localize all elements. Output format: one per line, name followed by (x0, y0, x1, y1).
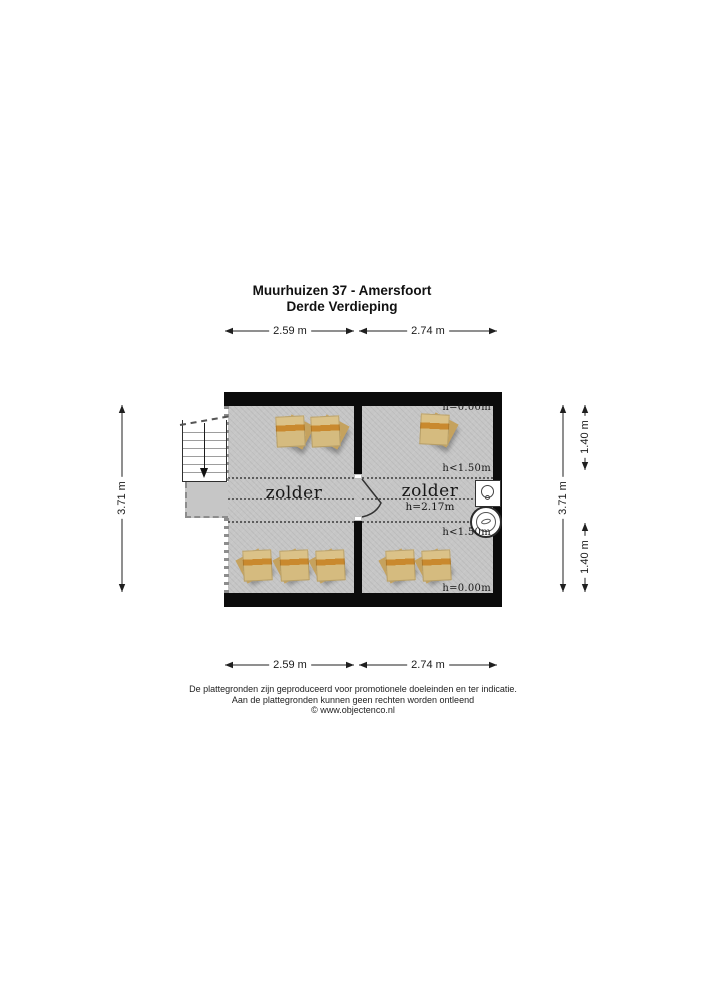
dim-bottom-left: 2.59 m (269, 659, 311, 671)
door-swing-icon (354, 474, 394, 524)
dim-left-side: 3.71 m (116, 477, 128, 519)
height-marker-lower: h<1.50m (442, 527, 491, 538)
room-label-left-zolder: zolder (266, 483, 323, 503)
dim-bottom-right: 2.74 m (407, 659, 449, 671)
ceiling-height-label: h=2.17m (406, 501, 455, 513)
height-marker-bottom: h=0.00m (442, 583, 491, 594)
disclaimer-line-3: © www.objectenco.nl (103, 705, 603, 716)
sloped-edge-lower (224, 518, 229, 593)
height-marker-upper: h<1.50m (442, 463, 491, 474)
dim-top-right: 2.74 m (407, 325, 449, 337)
dim-top-left: 2.59 m (269, 325, 311, 337)
title-address: Muurhuizen 37 - Amersfoort (192, 283, 492, 299)
stair-landing (185, 482, 228, 518)
skylight-icon (422, 550, 454, 582)
stairs-down-arrow-icon (200, 468, 208, 478)
title-floor: Derde Verdieping (192, 299, 492, 315)
headroom-line (228, 477, 354, 479)
toilet-fixture-icon (475, 480, 501, 507)
skylight-icon (276, 416, 308, 448)
disclaimer: De plattegronden zijn geproduceerd voor … (103, 684, 603, 716)
stair-direction-line (204, 423, 205, 469)
skylight-icon (420, 414, 452, 446)
wall-bottom (224, 593, 502, 607)
floorplan-page: Muurhuizen 37 - Amersfoort Derde Verdiep… (0, 0, 707, 1000)
wall-divider-upper (354, 406, 362, 474)
skylight-icon (311, 416, 343, 448)
skylight-icon (316, 550, 348, 582)
height-marker-top: h=0.00m (442, 402, 491, 413)
dim-right-outer: 3.71 m (557, 477, 569, 519)
headroom-line (228, 521, 354, 523)
disclaimer-line-2: Aan de plattegronden kunnen geen rechten… (103, 695, 603, 706)
wall-divider-lower (354, 521, 362, 593)
skylight-icon (280, 550, 312, 582)
disclaimer-line-1: De plattegronden zijn geproduceerd voor … (103, 684, 603, 695)
room-label-right-zolder: zolder (402, 481, 459, 501)
staircase (182, 420, 227, 482)
dim-right-lower: 1.40 m (579, 536, 591, 578)
skylight-icon (386, 550, 418, 582)
page-title: Muurhuizen 37 - Amersfoort Derde Verdiep… (192, 283, 492, 314)
skylight-icon (243, 550, 275, 582)
dim-right-upper: 1.40 m (579, 416, 591, 458)
